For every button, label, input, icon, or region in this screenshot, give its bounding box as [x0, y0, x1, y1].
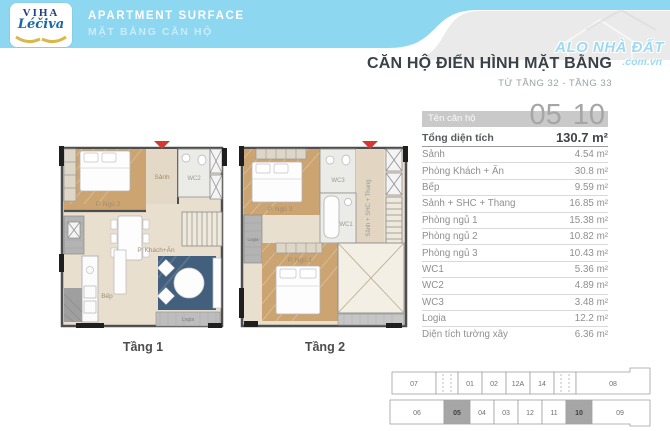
total-area-row: Tổng diện tích 130.7 m²	[422, 129, 608, 147]
table-row: WC15.36 m²	[422, 262, 608, 278]
void-x-icon	[338, 243, 404, 313]
row-value: 16.85 m²	[569, 198, 608, 209]
bedroom1-label: P. Ngủ 1	[288, 256, 313, 264]
table-row: Sảnh4.54 m²	[422, 147, 608, 163]
logo-laurel-icon	[14, 35, 68, 45]
bed-icon	[252, 162, 302, 202]
header-titles: APARTMENT SURFACE MẶT BẰNG CĂN HỘ	[88, 10, 245, 38]
keyplan-core-cell	[554, 372, 576, 394]
logia-label: Logia	[182, 317, 194, 323]
keyplan-number: 01	[466, 381, 474, 388]
table-row: Phòng ngủ 310.43 m²	[422, 245, 608, 261]
row-label: Phòng Khách + Ăn	[422, 166, 504, 177]
keyplan-core-cell	[436, 372, 458, 394]
wc1-label: WC1	[339, 222, 353, 228]
logia-label: Logia	[247, 237, 259, 242]
row-label: WC3	[422, 297, 444, 308]
brand-logo: VIHA Léčiva	[10, 3, 72, 47]
living-label: P. Khách+Ăn	[137, 245, 175, 254]
wc3-floor	[320, 149, 356, 193]
row-label: WC1	[422, 264, 444, 275]
keyplan-number: 04	[478, 410, 486, 417]
stairs-icon	[182, 212, 222, 246]
row-value: 6.36 m²	[575, 329, 608, 340]
row-value: 5.36 m²	[575, 264, 608, 275]
keyplan-number-highlighted: 05	[453, 410, 461, 417]
toilet-icon	[342, 155, 350, 165]
page: VIHA Léčiva APARTMENT SURFACE MẶT BẰNG C…	[0, 0, 670, 431]
row-value: 4.89 m²	[575, 280, 608, 291]
row-value: 30.8 m²	[575, 166, 608, 177]
keyplan-number: 08	[609, 381, 617, 388]
plan1-caption: Tầng 1	[56, 340, 230, 354]
row-value: 15.38 m²	[569, 215, 608, 226]
keyplan-number: 11	[550, 410, 557, 417]
area-table: Sảnh4.54 m² Phòng Khách + Ăn30.8 m² Bếp9…	[422, 147, 608, 343]
row-label: Phòng ngủ 2	[422, 231, 478, 242]
wc3-label: WC3	[331, 178, 345, 184]
watermark-brand: ALO NHÀ ĐẤT	[544, 39, 664, 56]
table-row: Bếp9.59 m²	[422, 180, 608, 196]
hall-label: Sảnh	[154, 174, 170, 181]
row-label: WC2	[422, 280, 444, 291]
plan2-caption: Tầng 2	[238, 340, 412, 354]
unit-numbers: 05 10	[529, 101, 605, 130]
header-title-en: APARTMENT SURFACE	[88, 10, 245, 22]
row-value: 10.43 m²	[569, 248, 608, 259]
table-row: WC24.89 m²	[422, 278, 608, 294]
total-area-label: Tổng diện tích	[422, 132, 494, 144]
sink-icon	[182, 154, 190, 162]
round-table-icon	[158, 256, 221, 310]
title-block: CĂN HỘ ĐIỂN HÌNH MẶT BẰNG TỪ TẦNG 32 - T…	[367, 55, 612, 89]
bathtub-icon	[324, 196, 339, 238]
stairs-icon	[386, 197, 402, 247]
keyplan-number: 06	[413, 410, 421, 417]
wardrobe-icon	[276, 243, 322, 253]
row-value: 9.59 m²	[575, 182, 608, 193]
keyplan-number: 12	[526, 410, 534, 417]
row-value: 3.48 m²	[575, 297, 608, 308]
sink-icon	[326, 156, 334, 164]
keyplan-number: 02	[490, 381, 498, 388]
unit-name-bar: Tên căn hộ 05 10	[422, 111, 608, 127]
floorplan-level-1: P. Ngủ 2 Sảnh WC2	[56, 138, 230, 338]
kitchen-label: Bếp	[101, 291, 113, 300]
bed-icon	[276, 266, 320, 314]
hall-label: Sảnh + SHC + Thang	[366, 179, 372, 236]
sink-icon	[345, 199, 352, 206]
header-title-vi: MẶT BẰNG CĂN HỘ	[88, 26, 245, 38]
logo-text-leciva: Léčiva	[10, 17, 72, 32]
keyplan-number: 14	[538, 381, 546, 388]
table-row: Phòng ngủ 210.82 m²	[422, 229, 608, 245]
row-value: 4.54 m²	[575, 149, 608, 160]
keyplan: 07 01 02 12A 14 08 06 05 04 03 12 11 10 …	[388, 366, 664, 428]
row-label: Bếp	[422, 182, 439, 193]
keyplan-number-highlighted: 10	[575, 410, 583, 417]
bed-icon	[80, 151, 130, 191]
row-label: Sảnh + SHC + Thang	[422, 198, 516, 209]
table-row: Logia12.2 m²	[422, 311, 608, 327]
total-area-value: 130.7 m²	[556, 130, 608, 145]
bedroom3-label: P. Ngủ 3	[268, 205, 293, 213]
watermark-house-icon	[578, 4, 664, 34]
table-row: Phòng ngủ 115.38 m²	[422, 213, 608, 229]
row-label: Phòng ngủ 3	[422, 248, 478, 259]
keyplan-number: 12A	[512, 381, 525, 388]
row-label: Sảnh	[422, 149, 445, 160]
wc2-label: WC2	[187, 176, 201, 182]
bedroom2-label: P. Ngủ 2	[96, 200, 121, 208]
row-value: 10.82 m²	[569, 231, 608, 242]
keyplan-number: 09	[616, 410, 624, 417]
wardrobe-icon	[256, 149, 306, 159]
row-label: Diện tích tường xây	[422, 329, 508, 340]
row-label: Logia	[422, 313, 446, 324]
row-label: Phòng ngủ 1	[422, 215, 478, 226]
floorplan-level-2: P. Ngủ 3 WC3 Sảnh + SHC + Thang WC1	[236, 138, 412, 338]
page-subtitle: TỪ TẦNG 32 - TẦNG 33	[367, 78, 612, 89]
keyplan-number: 03	[502, 410, 510, 417]
table-row: Phòng Khách + Ăn30.8 m²	[422, 163, 608, 179]
table-row: WC33.48 m²	[422, 295, 608, 311]
toilet-icon	[198, 155, 206, 165]
unit-number-05: 05	[529, 101, 561, 130]
table-row: Diện tích tường xây6.36 m²	[422, 327, 608, 342]
keyplan-number: 07	[410, 381, 418, 388]
unit-number-10: 10	[573, 101, 605, 130]
row-value: 12.2 m²	[575, 313, 608, 324]
page-title: CĂN HỘ ĐIỂN HÌNH MẶT BẰNG	[367, 55, 612, 73]
table-row: Sảnh + SHC + Thang16.85 m²	[422, 196, 608, 212]
